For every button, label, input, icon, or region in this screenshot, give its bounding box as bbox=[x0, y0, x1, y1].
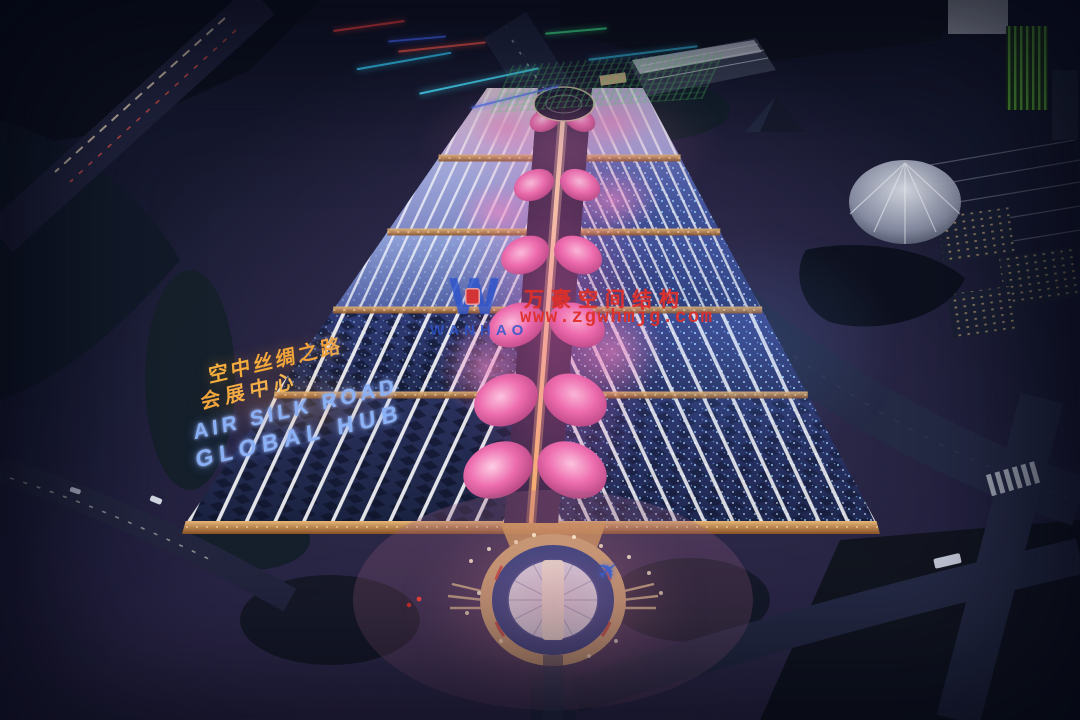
vignette-overlay bbox=[0, 0, 1080, 720]
aerial-night-rendering: 空中丝绸之路 会展中心 AIR SILK ROAD GLOBAL HUB ✈ W… bbox=[0, 0, 1080, 720]
